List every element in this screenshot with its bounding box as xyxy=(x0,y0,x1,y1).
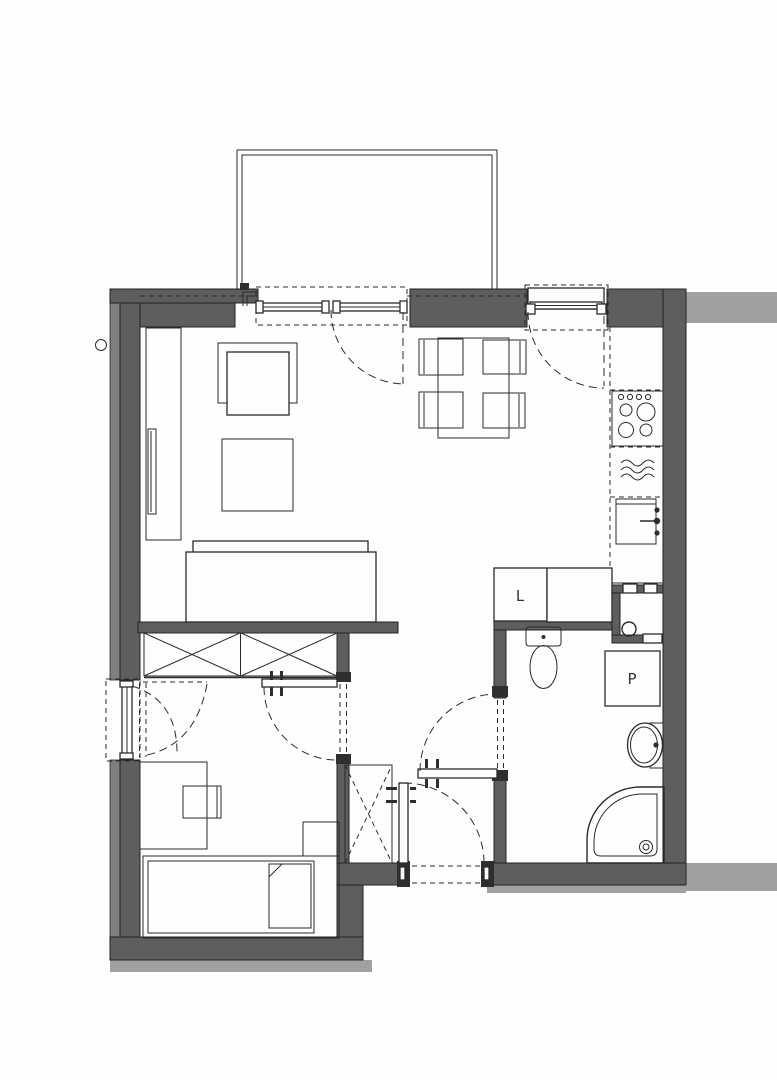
door-frame-block xyxy=(256,301,263,313)
bathroom-door-leaf xyxy=(418,769,497,778)
bathroom-west-wall-lower xyxy=(494,773,506,863)
door-handle xyxy=(436,759,439,768)
door-handle xyxy=(410,787,416,790)
jamb-slot xyxy=(484,867,489,880)
cooktop-knob xyxy=(627,394,632,399)
floor-plan-drawing: L P xyxy=(0,0,777,1080)
faucet-dot xyxy=(654,530,659,535)
burner xyxy=(640,424,652,436)
burner xyxy=(637,403,655,421)
bedroom-west-swing xyxy=(140,682,208,757)
bed-mattress xyxy=(148,861,314,933)
sofa-base xyxy=(186,552,376,622)
door-jamb xyxy=(492,686,508,697)
dishwasher-symbol xyxy=(621,460,654,480)
living-room xyxy=(146,328,376,622)
kitchen-window-swing-arc xyxy=(528,312,604,388)
shower xyxy=(587,787,664,863)
toilet xyxy=(526,627,561,689)
kitchen-sink xyxy=(616,499,660,544)
bathroom-door xyxy=(418,686,508,788)
cooktop-knob xyxy=(645,394,650,399)
burner xyxy=(620,404,632,416)
bedroom-door-leaf xyxy=(262,679,337,687)
desk-chair xyxy=(183,786,221,818)
fridge-label: L xyxy=(516,587,525,605)
neighbor-strip-bottom xyxy=(487,885,686,893)
left-wall-outer-lower xyxy=(110,760,120,960)
kitchen-cabinet xyxy=(547,568,612,622)
door-handle xyxy=(280,671,283,680)
dining-table xyxy=(438,338,509,438)
bathroom-door-swing-arc xyxy=(420,694,497,771)
door-frame-block xyxy=(333,301,340,313)
bed-frame xyxy=(143,856,339,938)
coffee-table xyxy=(222,439,293,511)
pillow xyxy=(269,864,311,928)
cooktop-knob xyxy=(618,394,623,399)
jamb-slot xyxy=(400,867,405,880)
balcony-railing-inner xyxy=(242,155,492,290)
window-frame-block xyxy=(597,304,606,314)
burner xyxy=(619,423,634,438)
armchair-seat xyxy=(227,352,289,415)
dining-chair-bottom-left xyxy=(419,392,463,428)
balcony-door-swing-arc xyxy=(331,310,405,384)
exterior-pipe-circle xyxy=(96,340,107,351)
door-handle xyxy=(280,687,283,696)
door-handle xyxy=(425,759,428,768)
window-frame-block xyxy=(526,304,535,314)
shaft-vent-slot xyxy=(623,584,637,593)
shaft-vent-slot xyxy=(644,584,657,593)
step-wall xyxy=(337,885,363,937)
bedroom-window-swing-arc xyxy=(132,686,177,755)
left-wall-upper xyxy=(120,303,140,680)
door-frame-block xyxy=(400,301,407,313)
pillow-fold xyxy=(269,864,282,877)
right-wall xyxy=(663,289,686,885)
toilet-bowl xyxy=(530,646,557,689)
window-frame-block xyxy=(120,753,133,759)
shower-tray-inner xyxy=(594,794,657,856)
neighbor-wall-bottom-right xyxy=(686,863,777,891)
living-south-wall xyxy=(138,622,398,633)
toilet-button xyxy=(542,635,546,639)
left-wall-lower xyxy=(120,760,140,960)
kitchen: L xyxy=(494,327,663,622)
faucet-dot xyxy=(654,518,660,524)
door-handle xyxy=(386,800,397,803)
entrance-door-leaf xyxy=(399,783,408,863)
neighbor-strip-bottom-left xyxy=(110,960,372,972)
bottom-wall-bedroom xyxy=(110,937,363,960)
washbasin-tap xyxy=(653,742,658,747)
window-frame-block xyxy=(120,681,133,687)
wave-line xyxy=(621,467,654,473)
faucet-dot xyxy=(654,507,659,512)
bedroom xyxy=(140,762,339,938)
kitchen-window xyxy=(525,285,608,388)
installation-shaft xyxy=(612,584,663,643)
top-wall-left-outer xyxy=(110,289,258,303)
shower-tray-outer xyxy=(587,787,664,863)
dining-area xyxy=(419,338,526,438)
left-wall-outer-upper xyxy=(110,289,120,680)
bedroom-door-swing-arc xyxy=(264,687,337,760)
wave-line xyxy=(621,460,654,466)
door-handle xyxy=(270,671,273,680)
door-handle xyxy=(425,779,428,788)
shower-drain-outer xyxy=(640,841,653,854)
door-handle xyxy=(436,779,439,788)
balcony-railing-outer xyxy=(237,150,497,290)
wave-line xyxy=(621,474,654,480)
dining-chair-top-left xyxy=(419,339,463,375)
nightstand xyxy=(303,822,339,856)
shaft-wall-left xyxy=(612,585,620,643)
cooktop xyxy=(612,391,663,446)
tv-screen xyxy=(148,429,156,514)
bottom-wall-hall-left xyxy=(337,863,403,885)
door-handle xyxy=(386,787,397,790)
top-wall-middle xyxy=(410,289,527,327)
bedroom-door xyxy=(262,671,351,764)
wardrobe xyxy=(144,633,337,678)
door-jamb xyxy=(336,672,351,682)
door-jamb xyxy=(336,754,351,764)
bedroom-window xyxy=(106,679,177,761)
railing-post xyxy=(240,283,249,290)
neighbor-wall-top-right xyxy=(686,292,777,323)
shaft-pipe xyxy=(622,622,636,636)
shaft-vent-slot xyxy=(643,634,662,643)
bottom-wall-bath xyxy=(487,863,686,885)
washing-machine-label: P xyxy=(627,670,636,688)
door-frame-block xyxy=(322,301,329,313)
cooktop-knob xyxy=(636,394,641,399)
entrance-door-swing-arc xyxy=(404,783,484,863)
hall-closet xyxy=(345,765,392,863)
walls xyxy=(110,289,686,960)
washbasin xyxy=(628,723,664,768)
balcony xyxy=(237,150,497,306)
entrance-door xyxy=(386,783,494,887)
shower-drain-inner xyxy=(643,844,649,850)
door-handle xyxy=(410,800,416,803)
bathroom: P xyxy=(526,627,664,863)
door-handle xyxy=(270,687,273,696)
desk xyxy=(140,762,207,849)
floor-plan-page: L P xyxy=(0,0,777,1080)
